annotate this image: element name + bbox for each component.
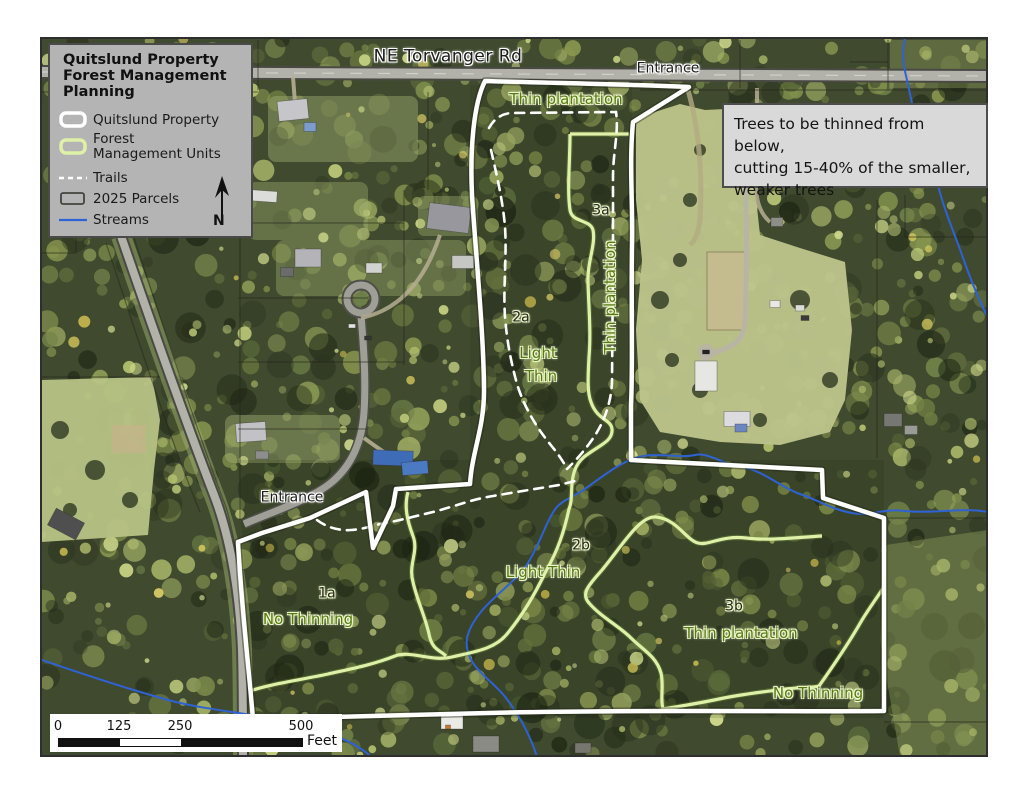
scale-bar-segments <box>58 738 303 747</box>
legend-item-quitslund-property: Quitslund Property <box>56 109 219 131</box>
legend-item-streams: Streams <box>56 209 149 231</box>
legend-title-line: Forest Management <box>63 68 227 84</box>
map-label-unit-3a-name: Thin plantation <box>602 240 619 353</box>
note-line: Trees to be thinned from below, <box>734 113 976 157</box>
map-label-unit-2b-name: Light Thin <box>506 564 581 581</box>
map-label-unit-2a-name-line1: Light <box>519 345 556 362</box>
legend-item-trails: Trails <box>56 167 128 189</box>
note-box: Trees to be thinned from below, cutting … <box>722 103 988 188</box>
map-label-unit-2a-id: 2a <box>512 310 530 325</box>
map-label-entrance-west: Entrance <box>261 490 324 505</box>
legend-item-label: Quitslund Property <box>93 113 219 128</box>
map-label-road-ne-torvanger-rd: NE Torvanger Rd <box>374 48 523 67</box>
scale-tick-0: 0 <box>54 719 62 734</box>
legend-title: Quitslund Property Forest Management Pla… <box>63 52 227 100</box>
scale-bar-segment <box>181 739 302 746</box>
legend-box: Quitslund Property Forest Management Pla… <box>48 43 253 238</box>
dark-rect-symbol-icon <box>56 189 90 209</box>
legend-item-parcels-2025: 2025 Parcels <box>56 188 179 210</box>
scale-bar: 0125250500 Feet <box>50 714 342 752</box>
map-label-unit-2b-id: 2b <box>572 538 590 553</box>
legend-item-forest-management-units: Forest Management Units <box>56 131 221 163</box>
legend-title-line: Planning <box>63 84 227 100</box>
map-label-unit-2a-name-line2: Thin <box>525 368 557 385</box>
map-label-unit-1a-id: 1a <box>318 586 336 601</box>
svg-text:N: N <box>213 213 225 226</box>
legend-item-label: Trails <box>93 171 128 186</box>
scale-bar-segment <box>120 739 181 746</box>
white-dash-symbol-icon <box>56 168 90 188</box>
green-outline-symbol-icon <box>56 137 90 157</box>
north-arrow: N <box>205 174 235 230</box>
blue-line-symbol-icon <box>56 210 90 230</box>
map-label-entrance-top: Entrance <box>637 61 700 76</box>
note-line: cutting 15-40% of the smaller, <box>734 157 976 179</box>
legend-item-label: Forest Management Units <box>93 132 221 162</box>
map-label-unit-top-thin-plantation: Thin plantation <box>509 91 622 108</box>
scale-tick-500: 500 <box>289 719 314 734</box>
map-label-unit-3b-nothin: No Thinning <box>773 685 863 702</box>
white-outline-symbol-icon <box>56 110 90 130</box>
legend-title-line: Quitslund Property <box>63 52 227 68</box>
scale-tick-250: 250 <box>168 719 193 734</box>
map-label-unit-1a-name: No Thinning <box>263 611 353 628</box>
note-line: weaker trees <box>734 179 976 201</box>
scale-tick-125: 125 <box>107 719 132 734</box>
scale-bar-segment <box>59 739 120 746</box>
map-label-unit-3b-name: Thin plantation <box>684 625 797 642</box>
map-label-unit-3a-id: 3a <box>592 203 610 218</box>
legend-item-label: 2025 Parcels <box>93 192 179 207</box>
legend-item-label: Streams <box>93 213 149 228</box>
map-export-page: NE Torvanger RdEntranceThin plantation3a… <box>0 0 1024 791</box>
scale-bar-unit: Feet <box>307 733 337 749</box>
map-label-unit-3b-id: 3b <box>725 599 743 614</box>
